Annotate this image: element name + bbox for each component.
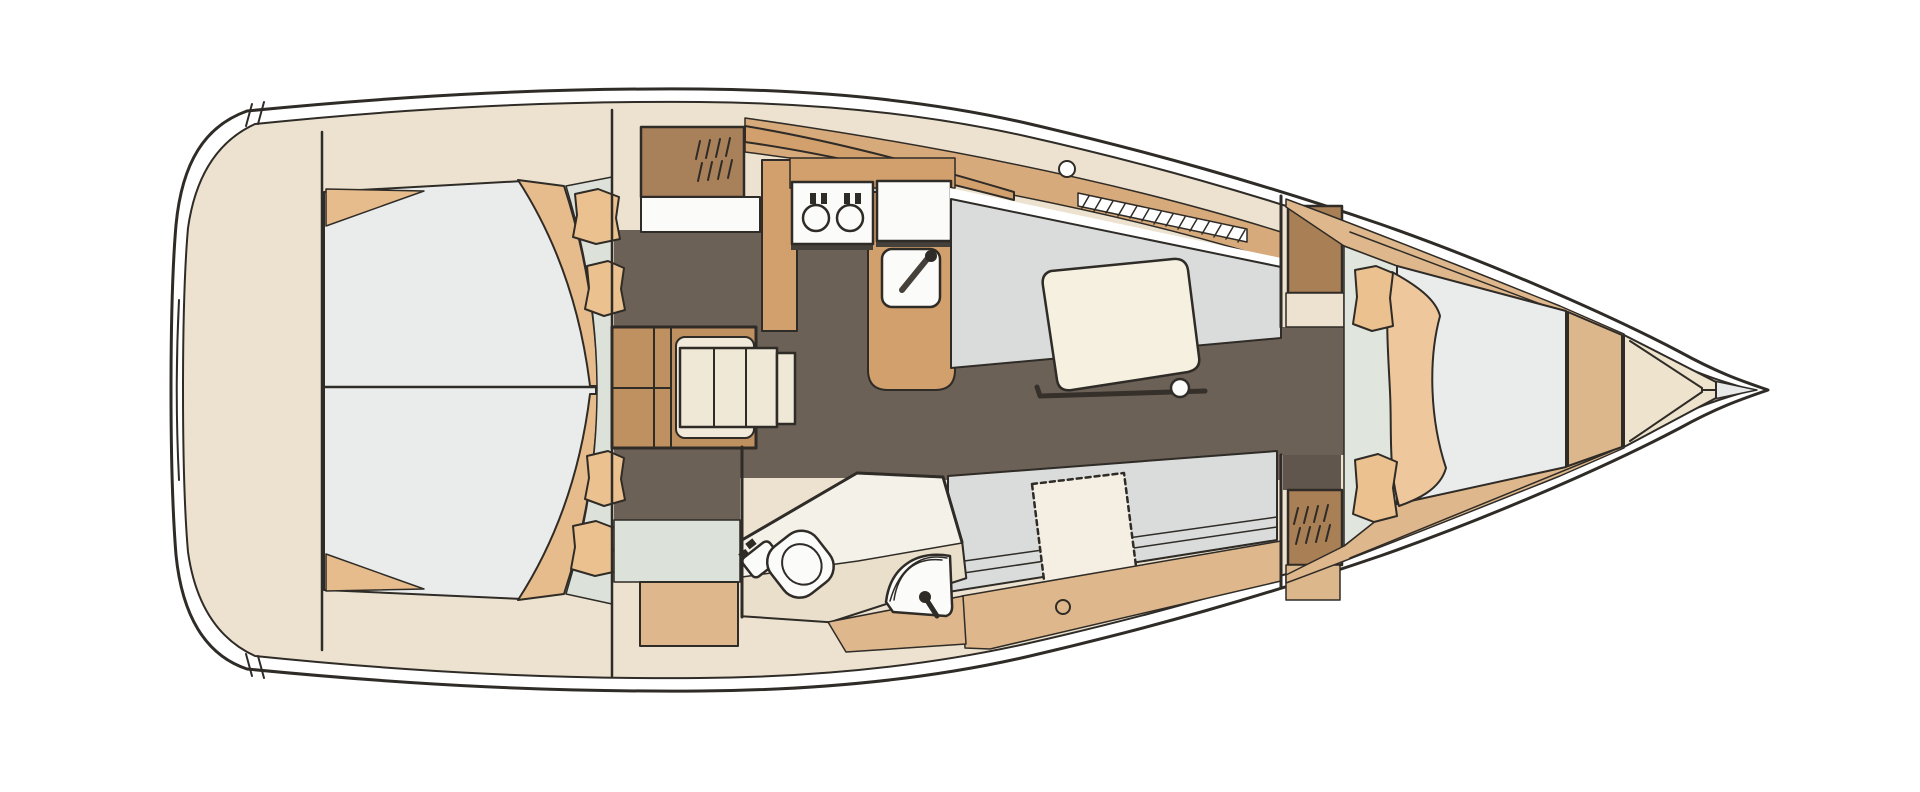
bulkhead-shelf xyxy=(1286,293,1344,327)
hanging-locker xyxy=(641,127,744,197)
sole-passage-shadow xyxy=(1283,455,1341,490)
locker-deck-plate xyxy=(1056,600,1070,614)
stove-knob-3 xyxy=(844,193,850,204)
stove-knob-1 xyxy=(810,193,816,204)
stove-knob-2 xyxy=(821,193,827,204)
v-berth-foot-band xyxy=(1568,312,1622,466)
aft-pillow-3 xyxy=(585,451,625,506)
sole-companionway-landing xyxy=(614,230,763,330)
sole-by-sink xyxy=(868,380,952,480)
bow xyxy=(1624,335,1757,447)
aft-pillow-2 xyxy=(585,261,625,316)
stairs-tread-cap xyxy=(777,353,795,424)
yacht-floorplan xyxy=(0,0,1920,792)
head-port-locker xyxy=(640,582,738,646)
fwd-pillow-2 xyxy=(1353,454,1397,522)
stove-burner-right xyxy=(837,205,863,231)
stove-knob-4 xyxy=(855,193,861,204)
galley-faucet-base xyxy=(925,250,937,262)
fwd-pillow-1 xyxy=(1353,266,1393,331)
deck-hatch xyxy=(1059,161,1075,177)
floorplan-canvas xyxy=(0,0,1920,792)
salon-table xyxy=(1043,259,1200,390)
icebox xyxy=(877,181,951,241)
table-leg xyxy=(1171,379,1189,397)
stairs-treads xyxy=(680,348,777,427)
aft-cabin xyxy=(322,132,625,650)
sole-galley-upper xyxy=(795,243,870,333)
companionway-shelf xyxy=(641,197,760,232)
stove-burner-left xyxy=(803,205,829,231)
vestibule-side-shelf xyxy=(614,520,740,582)
